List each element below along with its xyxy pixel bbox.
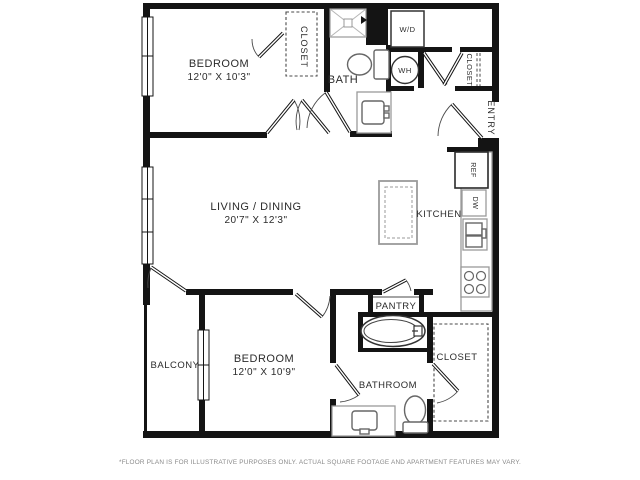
wall-chase-block bbox=[366, 3, 388, 45]
bathroom-label: BATHROOM bbox=[359, 380, 417, 391]
door-swing bbox=[252, 33, 283, 57]
wall-tub-front bbox=[358, 348, 430, 352]
pantry-label: PANTRY bbox=[376, 301, 417, 312]
kitchen-island bbox=[379, 181, 417, 244]
bedroom-bottom-name: BEDROOM bbox=[234, 353, 294, 365]
stove-icon bbox=[461, 267, 489, 297]
window-icon bbox=[198, 330, 209, 400]
washer-dryer-box: W/D bbox=[391, 11, 424, 47]
closet-entry-label: CLOSET bbox=[465, 53, 474, 86]
wall bbox=[424, 47, 452, 52]
wall bbox=[427, 312, 433, 363]
door-swing bbox=[383, 280, 411, 292]
refrigerator-box: REF bbox=[455, 152, 488, 188]
wall bbox=[492, 138, 499, 431]
dishwasher-label: DW bbox=[471, 197, 478, 210]
bedroom-top-dims: 12'0" X 10'3" bbox=[187, 72, 250, 83]
window-icon bbox=[142, 167, 153, 264]
wall bbox=[455, 86, 499, 91]
closet-bathroom-label: CLOSET bbox=[436, 352, 477, 363]
refrigerator-label: REF bbox=[469, 162, 476, 178]
kitchen-sink-icon bbox=[463, 219, 487, 250]
door-swing bbox=[336, 365, 359, 402]
kitchen-label: KITCHEN bbox=[416, 209, 461, 220]
wall bbox=[143, 431, 499, 438]
wall bbox=[145, 132, 267, 138]
wall bbox=[460, 47, 499, 52]
door-swing bbox=[296, 294, 330, 317]
bath-label: BATH bbox=[328, 74, 359, 86]
door-swing bbox=[267, 100, 329, 133]
wall bbox=[143, 3, 499, 9]
bathtub-icon bbox=[361, 316, 425, 347]
wall bbox=[143, 95, 150, 168]
entry-label: ENTRY bbox=[486, 100, 496, 135]
window-icon bbox=[142, 17, 153, 96]
dishwasher-box: DW bbox=[462, 190, 486, 216]
living-dining-name: LIVING / DINING bbox=[210, 201, 301, 213]
footnote: *FLOOR PLAN IS FOR ILLUSTRATIVE PURPOSES… bbox=[119, 459, 521, 466]
wall bbox=[331, 289, 382, 295]
door-swing bbox=[148, 267, 186, 291]
washer-dryer-label: W/D bbox=[399, 25, 415, 34]
floor-plan: W/D WH REF DW bbox=[0, 0, 640, 480]
bedroom-top-name: BEDROOM bbox=[189, 58, 249, 70]
living-dining-dims: 20'7" X 12'3" bbox=[224, 215, 287, 226]
water-heater-icon: WH bbox=[392, 57, 419, 84]
wall bbox=[478, 138, 492, 152]
floor-plan-canvas: W/D WH REF DW bbox=[0, 0, 640, 480]
wall bbox=[330, 289, 336, 363]
vanity-sink-icon bbox=[332, 406, 395, 436]
door-swing bbox=[433, 364, 458, 403]
closet-bedroom-top-label: CLOSET bbox=[299, 26, 309, 68]
wall bbox=[143, 3, 150, 18]
door-swing bbox=[424, 53, 462, 85]
toilet-icon bbox=[403, 396, 428, 433]
vanity-sink-icon bbox=[357, 92, 391, 133]
door-swing bbox=[438, 104, 482, 138]
bedroom-bottom-dims: 12'0" X 10'9" bbox=[232, 367, 295, 378]
water-heater-label: WH bbox=[398, 66, 412, 75]
wall bbox=[386, 86, 414, 91]
shower-icon bbox=[330, 9, 367, 37]
wall-balcony-side bbox=[144, 305, 147, 435]
wall bbox=[143, 263, 150, 305]
balcony-label: BALCONY bbox=[151, 360, 200, 371]
